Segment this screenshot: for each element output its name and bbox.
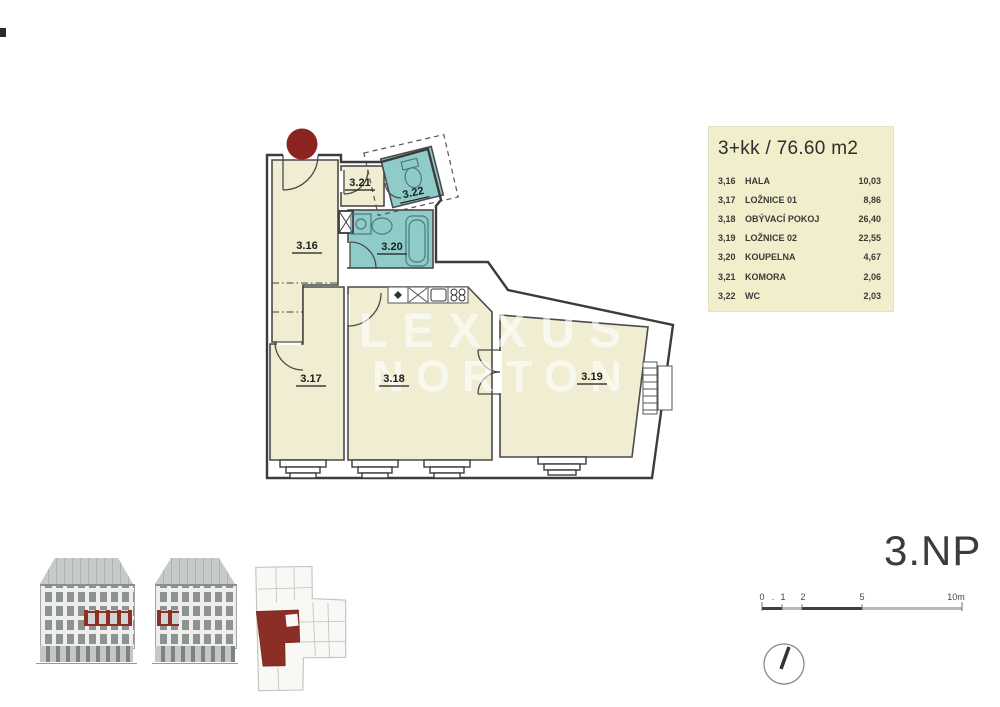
unit-floor-highlight-side [157, 610, 179, 626]
entrance-marker [287, 129, 318, 160]
apartment-plan: LEXXUS NORTON 3.16 3.17 3.18 3.19 3.20 3… [267, 129, 673, 479]
room-name: KOMORA [745, 272, 863, 282]
room-number: 3,21 [718, 272, 745, 282]
room-area: 10,03 [858, 176, 881, 186]
room-area: 2,06 [863, 272, 881, 282]
room-area: 22,55 [858, 233, 881, 243]
side-window [643, 362, 672, 414]
plan-drawing: LEXXUS NORTON 3.16 3.17 3.18 3.19 3.20 3… [0, 0, 1000, 707]
legend-row: 3,17 LOŽNICE 01 8,86 [718, 190, 881, 209]
room-name: HALA [745, 176, 858, 186]
label-komora: 3.21 [349, 177, 370, 189]
room-name: OBÝVACÍ POKOJ [745, 214, 858, 224]
room-number: 3,20 [718, 252, 745, 262]
scale-tick-5: 5 [859, 592, 864, 602]
room-number: 3,22 [718, 291, 745, 301]
scale-tick-10m: 10m [947, 592, 965, 602]
room-name: WC [745, 291, 863, 301]
legend-panel: 3+kk / 76.60 m2 3,16 HALA 10,03 3,17 LOŽ… [708, 126, 894, 312]
legend-row: 3,18 OBÝVACÍ POKOJ 26,40 [718, 209, 881, 228]
label-hala: 3.16 [296, 240, 317, 252]
watermark-line1: LEXXUS [359, 305, 635, 358]
basement-front [40, 646, 133, 662]
scale-tick-2: 2 [800, 592, 805, 602]
room-number: 3,19 [718, 233, 745, 243]
floor-label: 3.NP [884, 527, 994, 575]
legend-row: 3,22 WC 2,03 [718, 286, 881, 305]
ground-line [36, 663, 137, 664]
room-name: KOUPELNA [745, 252, 863, 262]
ground-line [152, 663, 238, 664]
unit-floor-highlight-front [84, 610, 132, 626]
basement-side [155, 646, 235, 662]
label-loznice02: 3.19 [581, 371, 602, 383]
north-indicator [764, 644, 804, 684]
room-area: 2,03 [863, 291, 881, 301]
room-area: 4,67 [863, 252, 881, 262]
kitchen-counter [388, 287, 468, 303]
room-number: 3,17 [718, 195, 745, 205]
room-number: 3,18 [718, 214, 745, 224]
legend-row: 3,21 KOMORA 2,06 [718, 267, 881, 286]
label-koupelna: 3.20 [381, 241, 402, 253]
roof-front [40, 558, 133, 584]
legend-title: 3+kk / 76.60 m2 [718, 138, 894, 160]
scale-tick-half: . [772, 592, 775, 602]
room-area: 26,40 [858, 214, 881, 224]
room-name: LOŽNICE 02 [745, 233, 858, 243]
label-loznice01: 3.17 [300, 373, 321, 385]
room-number: 3,16 [718, 176, 745, 186]
scale-tick-1: 1 [780, 592, 785, 602]
scale-tick-0: 0 [759, 592, 764, 602]
label-obyvaci-pokoj: 3.18 [383, 373, 404, 385]
scale-bar: 0 . 1 2 5 10m [759, 592, 964, 611]
legend-row: 3,20 KOUPELNA 4,67 [718, 248, 881, 267]
legend-row: 3,16 HALA 10,03 [718, 171, 881, 190]
room-name: LOŽNICE 01 [745, 195, 863, 205]
key-plan [246, 558, 355, 694]
room-area: 8,86 [863, 195, 881, 205]
bay-windows [280, 457, 586, 478]
legend-row: 3,19 LOŽNICE 02 22,55 [718, 229, 881, 248]
floorplan-sheet: LEXXUS NORTON 3.16 3.17 3.18 3.19 3.20 3… [0, 0, 1000, 707]
